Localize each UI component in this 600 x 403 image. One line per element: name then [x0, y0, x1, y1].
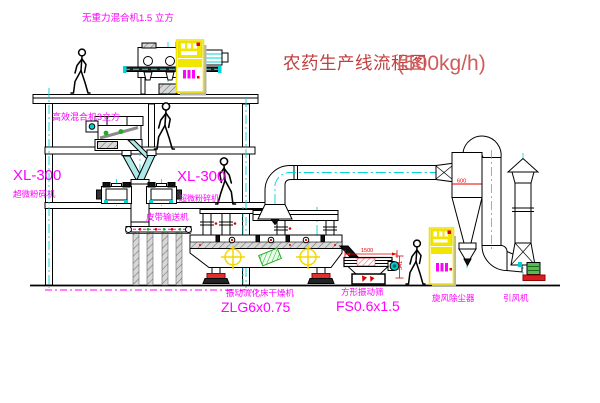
dim-sieve-height: 541 — [398, 261, 404, 270]
label-sieve-model: FS0.6x1.5 — [336, 298, 400, 314]
exhaust-duct — [265, 163, 455, 205]
label-mixer-mid: 高效混合机3立方 — [52, 111, 120, 122]
dim-sieve-width: 1500 — [361, 248, 373, 254]
ground — [30, 286, 560, 291]
label-pulverizer-left-model: XL-300 — [13, 167, 61, 184]
control-cabinet-top — [177, 40, 207, 96]
fluid-bed-dryer — [190, 205, 358, 285]
label-pulverizer-mid-model: XL-300 — [177, 168, 225, 185]
belt-conveyor — [126, 227, 192, 286]
label-pulverizer-left-name: 超微粉碎机 — [13, 189, 56, 199]
label-dryer-model: ZLG6x0.75 — [221, 299, 290, 315]
label-cyclone-name: 旋风除尘器 — [432, 293, 475, 303]
process-flow-drawing: 无重力混合机1.5 立方 农药生产线流程图 (500kg/h) 高效混合机3立方… — [0, 0, 600, 403]
pulverizer-left — [97, 179, 132, 206]
dim-cyclone: 600 — [457, 179, 466, 185]
gravity-free-mixer — [123, 42, 228, 95]
label-dryer-name: 振动流化床干燥机 — [226, 288, 295, 298]
page-title-capacity: (500kg/h) — [397, 52, 486, 75]
label-fan-name: 引风机 — [503, 293, 529, 303]
label-sieve-name: 方形振动筛 — [341, 287, 384, 297]
drawing-canvas: 无重力混合机1.5 立方 农药生产线流程图 (500kg/h) 高效混合机3立方… — [0, 0, 600, 403]
label-pulverizer-mid-name: 超微粉碎机 — [179, 193, 219, 203]
label-belt-conveyor: 皮带输送机 — [146, 212, 189, 222]
worker-ground-floor — [406, 240, 425, 284]
worker-second-floor — [154, 103, 174, 149]
label-mixer-top: 无重力混合机1.5 立方 — [82, 12, 174, 24]
worker-top-floor — [71, 49, 90, 93]
control-cabinet-right — [430, 228, 457, 287]
